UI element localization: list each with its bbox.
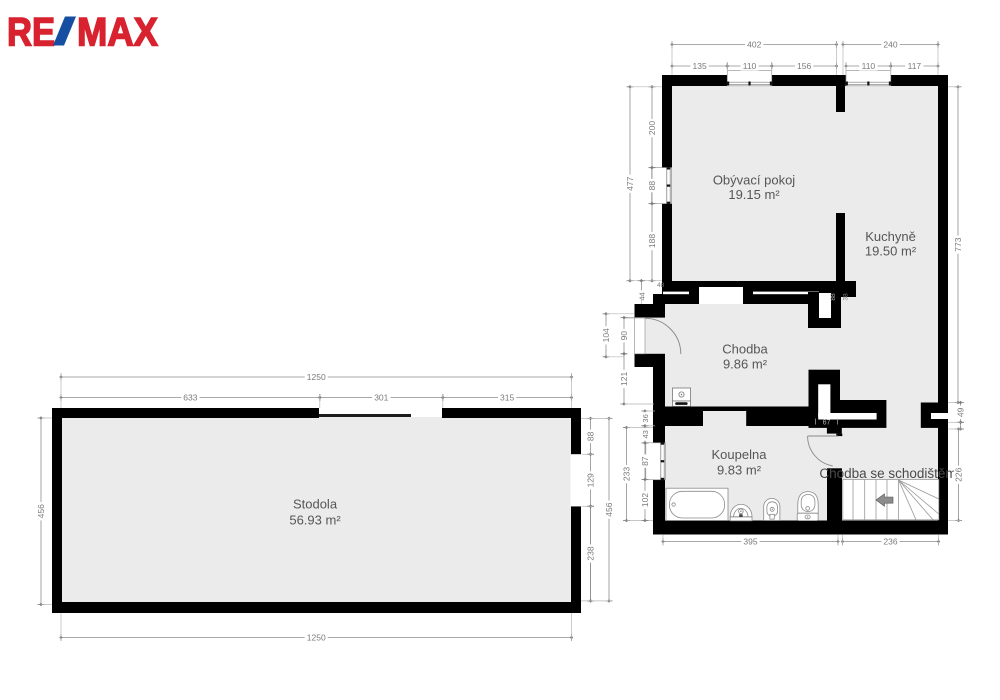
svg-text:156: 156 (797, 61, 811, 71)
svg-text:117: 117 (908, 61, 922, 71)
svg-text:236: 236 (883, 537, 897, 547)
svg-text:49: 49 (956, 407, 966, 417)
svg-text:38: 38 (843, 293, 850, 301)
svg-text:48: 48 (657, 282, 665, 289)
svg-text:110: 110 (862, 61, 876, 71)
svg-text:129: 129 (586, 473, 596, 487)
svg-text:200: 200 (647, 121, 657, 135)
svg-text:Kuchyně: Kuchyně (865, 229, 916, 244)
svg-text:301: 301 (374, 393, 388, 403)
svg-text:102: 102 (640, 493, 650, 507)
svg-text:121: 121 (619, 372, 629, 386)
svg-text:1250: 1250 (307, 633, 326, 643)
svg-text:226: 226 (954, 467, 964, 481)
svg-text:90: 90 (619, 331, 629, 341)
svg-text:188: 188 (647, 234, 657, 248)
svg-text:315: 315 (500, 393, 514, 403)
svg-text:110: 110 (743, 61, 757, 71)
svg-text:56.93 m²: 56.93 m² (289, 513, 341, 528)
svg-text:Stodola: Stodola (293, 497, 338, 512)
svg-text:88: 88 (586, 431, 596, 441)
svg-text:9.86 m²: 9.86 m² (723, 357, 768, 372)
svg-text:Chodba se schodištěm: Chodba se schodištěm (819, 466, 956, 481)
svg-text:36: 36 (641, 414, 650, 422)
svg-text:477: 477 (625, 176, 635, 190)
svg-text:104: 104 (601, 328, 611, 342)
svg-text:456: 456 (36, 504, 46, 518)
svg-text:773: 773 (953, 237, 963, 251)
svg-text:Chodba: Chodba (722, 342, 768, 357)
svg-text:MAX: MAX (77, 11, 158, 55)
svg-text:RE: RE (7, 11, 55, 55)
svg-text:240: 240 (883, 40, 897, 50)
svg-text:233: 233 (622, 467, 632, 481)
svg-text:395: 395 (743, 537, 757, 547)
svg-text:402: 402 (747, 40, 761, 50)
svg-text:9.83 m²: 9.83 m² (717, 463, 762, 478)
svg-text:87: 87 (640, 456, 650, 466)
svg-text:Koupelna: Koupelna (712, 447, 768, 462)
svg-text:1250: 1250 (307, 372, 326, 382)
svg-text:633: 633 (183, 393, 197, 403)
svg-text:19.15 m²: 19.15 m² (728, 187, 780, 202)
svg-text:88: 88 (647, 181, 657, 191)
svg-text:88: 88 (830, 293, 837, 301)
svg-text:Obývací pokoj: Obývací pokoj (713, 173, 795, 188)
svg-text:135: 135 (693, 61, 707, 71)
svg-text:67: 67 (823, 420, 831, 427)
svg-text:19.50 m²: 19.50 m² (865, 244, 917, 259)
svg-text:43: 43 (641, 430, 650, 438)
svg-text:44: 44 (637, 292, 646, 300)
svg-text:456: 456 (604, 502, 614, 516)
svg-text:238: 238 (586, 546, 596, 560)
